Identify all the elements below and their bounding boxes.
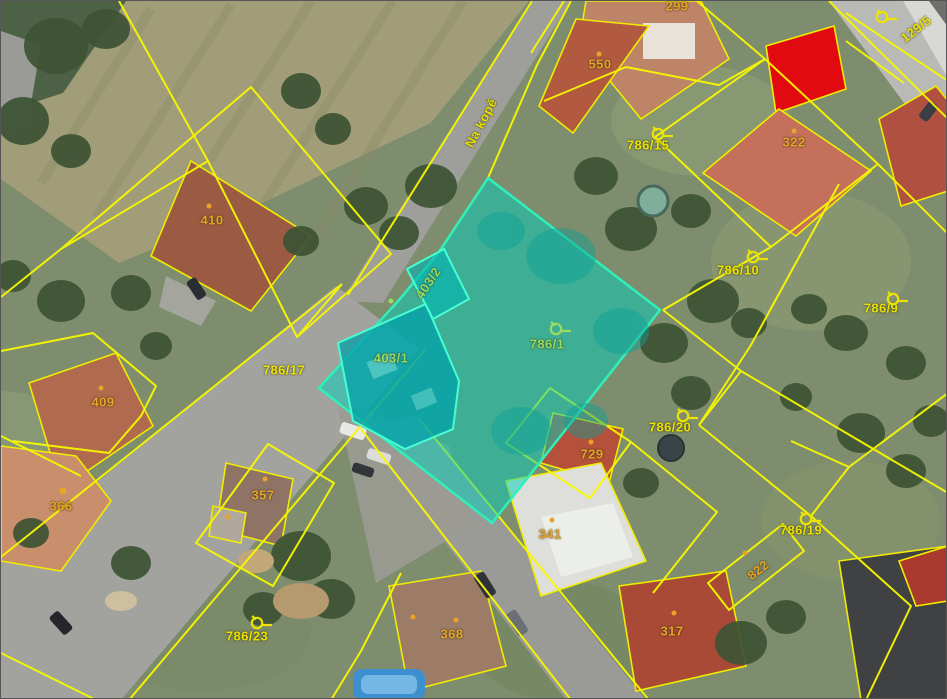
aerial-basemap (1, 1, 947, 699)
cadastral-map[interactable]: 299550786/15322129/5410Na kopě403/2403/1… (0, 0, 947, 699)
